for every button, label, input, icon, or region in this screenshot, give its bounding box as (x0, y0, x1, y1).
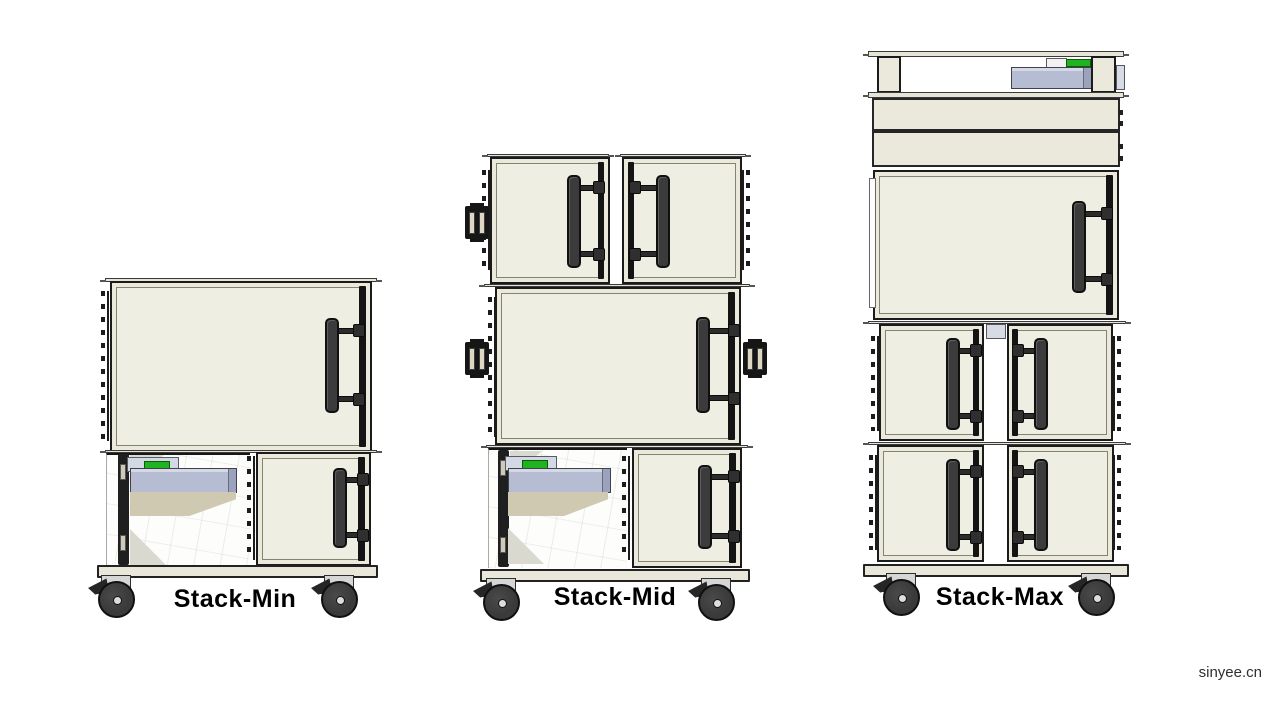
stack-max-figure: Stack-Max (860, 48, 1140, 620)
blank-panel (872, 98, 1120, 131)
stack-mid-label: Stack-Mid (460, 583, 770, 612)
slide-tray (130, 468, 237, 493)
edge-tick (1118, 121, 1123, 126)
hinge-strip (1113, 336, 1121, 431)
hinge-strip (488, 297, 496, 437)
door-handle (567, 175, 607, 268)
hinge-strip (1113, 455, 1121, 550)
blank-panel (872, 131, 1120, 167)
door-handle (1072, 201, 1115, 293)
slide-tray (1011, 67, 1092, 89)
door-handle (325, 318, 367, 413)
door-handle (1010, 459, 1048, 551)
edge-tick (1118, 144, 1123, 149)
hinge-strip (871, 336, 879, 431)
slide-tray (508, 468, 611, 493)
edge-tick (1118, 110, 1123, 115)
hinge-strip (869, 455, 877, 550)
watermark: sinyee.cn (1199, 664, 1262, 681)
door-handle (627, 175, 670, 268)
frame-post-left (877, 56, 901, 93)
door-handle (1010, 338, 1048, 430)
stack-max-label: Stack-Max (860, 583, 1140, 612)
side-latch-clamp (743, 342, 767, 375)
door-handle (333, 468, 371, 548)
top-rail (868, 51, 1124, 57)
door-handle (946, 459, 984, 551)
stack-min-label: Stack-Min (85, 585, 385, 614)
green-indicator (1066, 59, 1091, 67)
hinge-strip (622, 456, 630, 560)
side-latch-clamp (465, 342, 489, 375)
hinge-strip (869, 178, 876, 308)
hinge-strip (101, 291, 109, 441)
hinge-strip (742, 170, 750, 270)
side-bracket (1116, 65, 1125, 90)
center-connector (986, 324, 1006, 339)
hinge-strip (247, 456, 255, 560)
door-handle (696, 317, 742, 413)
stack-min-figure: Stack-Min (85, 278, 385, 620)
side-latch-clamp (465, 206, 489, 239)
frame-post-right (1091, 56, 1116, 93)
door-handle (698, 465, 742, 549)
stack-mid-figure: Stack-Mid (460, 150, 770, 625)
door-handle (946, 338, 984, 430)
edge-tick (1118, 156, 1123, 161)
